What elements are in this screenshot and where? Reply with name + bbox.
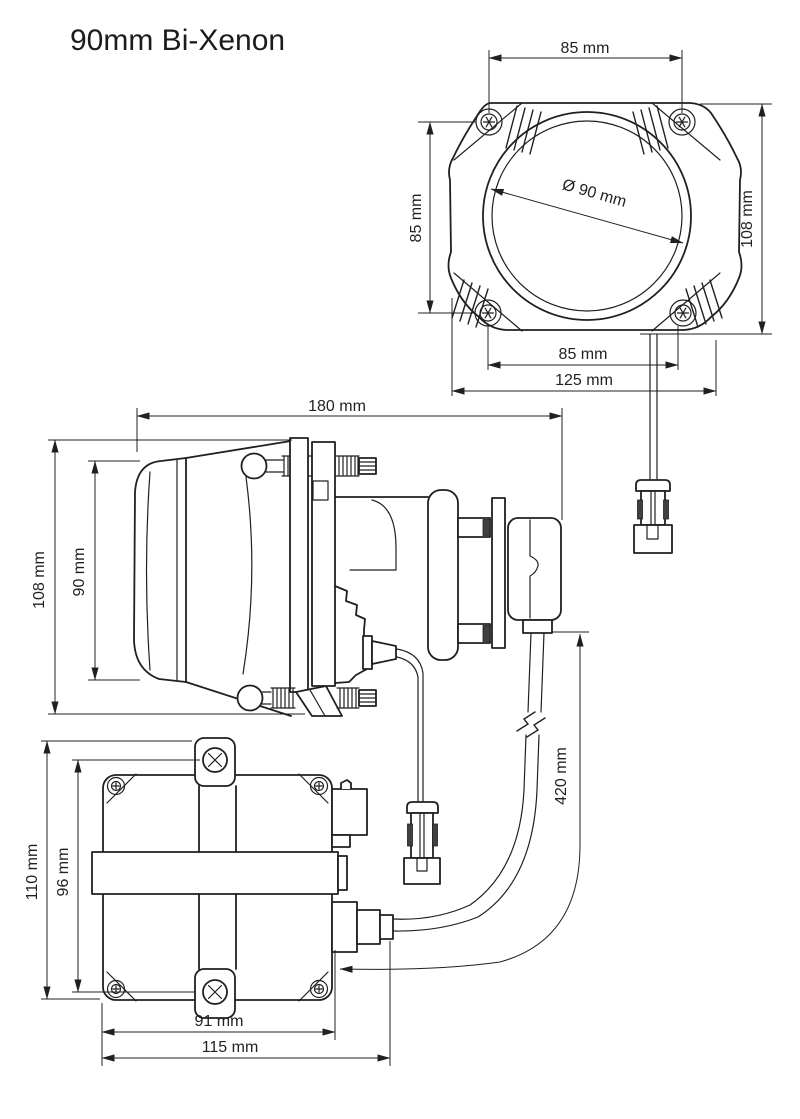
projector-body bbox=[186, 441, 291, 716]
dim-label: 115 mm bbox=[202, 1039, 259, 1056]
rear-ring bbox=[428, 490, 458, 660]
lens-side-profile bbox=[134, 458, 186, 682]
strap-screw-top-icon bbox=[203, 748, 227, 772]
page-title: 90mm Bi-Xenon bbox=[70, 24, 285, 57]
rear-plate bbox=[492, 498, 505, 648]
bracket-plate-front bbox=[290, 438, 308, 692]
dim-label: 85 mm bbox=[408, 194, 425, 243]
dim-label: 85 mm bbox=[559, 346, 608, 363]
front-view: 85 mm 85 mm Ø 90 mm 108 mm 85 mm 125 mm bbox=[408, 40, 772, 553]
dim-label: 108 mm bbox=[739, 190, 756, 248]
lamp-cable bbox=[393, 633, 545, 931]
dim-label: 90 mm bbox=[71, 548, 88, 597]
bulb-cover bbox=[508, 518, 561, 620]
headlamp-dimension-drawing: 90mm Bi-Xenon bbox=[0, 0, 800, 1119]
technical-drawing-page: 90mm Bi-Xenon bbox=[0, 0, 800, 1119]
top-adjuster-tip bbox=[336, 456, 376, 476]
dim-label: 110 mm bbox=[24, 844, 41, 901]
bracket-plate-rear bbox=[312, 442, 335, 686]
strap-screw-bottom-icon bbox=[203, 980, 227, 1004]
dim-label: 96 mm bbox=[55, 848, 72, 897]
dim-side-lens-height: 90 mm bbox=[71, 461, 140, 680]
dim-label: 85 mm bbox=[561, 40, 610, 57]
front-pigtail-connector bbox=[634, 480, 672, 553]
cable-gland bbox=[523, 620, 552, 633]
ballast-output-connector bbox=[332, 902, 393, 952]
dim-label: 108 mm bbox=[31, 551, 48, 609]
rear-housing bbox=[335, 490, 561, 683]
dim-label: 91 mm bbox=[195, 1013, 244, 1030]
strap-horizontal bbox=[92, 852, 338, 894]
front-pigtail-wire bbox=[650, 334, 657, 479]
bracket-foot bbox=[296, 686, 342, 716]
ballast-view: 110 mm 96 mm 91 mm 115 mm bbox=[24, 738, 393, 1066]
ballast-input-connector bbox=[332, 780, 367, 847]
cable-break-icon bbox=[517, 712, 545, 737]
dim-label: 180 mm bbox=[308, 398, 366, 415]
igniter-plug bbox=[372, 641, 396, 664]
dim-label: 420 mm bbox=[553, 747, 570, 805]
dim-front-mount-width-top: 85 mm bbox=[489, 40, 682, 113]
igniter-pigtail bbox=[397, 649, 440, 884]
dim-label: 125 mm bbox=[555, 372, 613, 389]
